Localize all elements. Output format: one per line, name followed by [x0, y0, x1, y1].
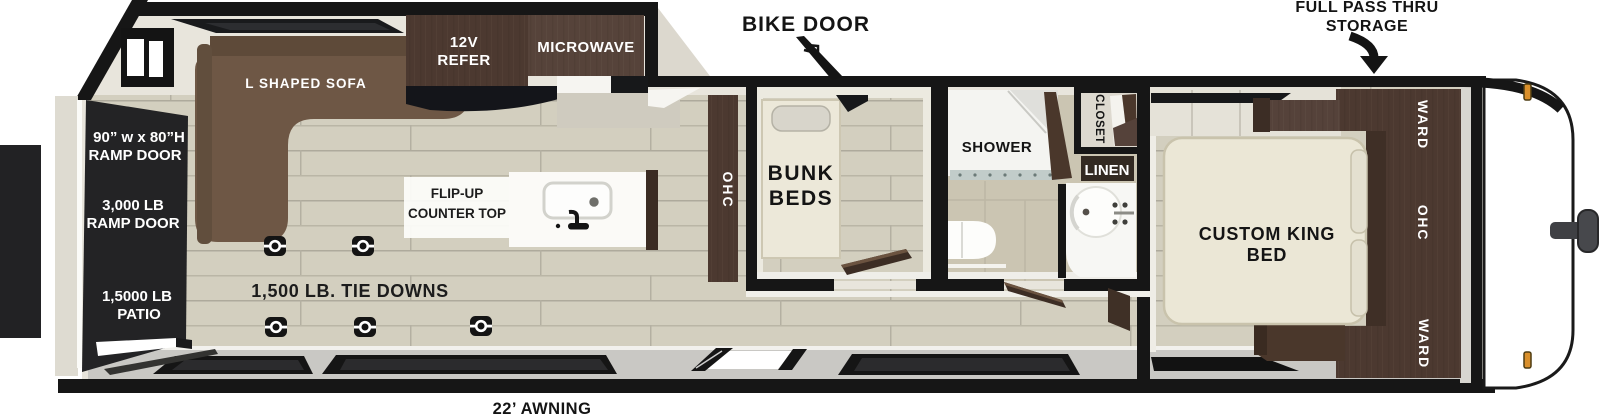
- svg-text:1,500 LB. TIE DOWNS: 1,500 LB. TIE DOWNS: [251, 281, 448, 301]
- svg-text:WARD: WARD: [1416, 319, 1432, 369]
- svg-text:CLOSET: CLOSET: [1093, 94, 1105, 144]
- svg-text:22’ AWNING: 22’ AWNING: [493, 400, 592, 415]
- svg-text:LINEN: LINEN: [1085, 162, 1130, 179]
- svg-text:SHOWER: SHOWER: [962, 139, 1033, 156]
- svg-text:BIKE DOOR: BIKE DOOR: [742, 13, 870, 36]
- svg-text:STORAGE: STORAGE: [1326, 18, 1408, 35]
- svg-text:BED: BED: [1247, 245, 1287, 265]
- svg-text:REFER: REFER: [437, 52, 490, 69]
- svg-text:FULL PASS THRU: FULL PASS THRU: [1295, 0, 1438, 16]
- svg-text:RAMP DOOR: RAMP DOOR: [86, 215, 179, 232]
- svg-text:1,5000 LB: 1,5000 LB: [102, 288, 172, 305]
- svg-text:L SHAPED SOFA: L SHAPED SOFA: [245, 76, 367, 91]
- svg-text:OHC: OHC: [1415, 205, 1431, 242]
- svg-text:PATIO: PATIO: [117, 306, 161, 323]
- svg-text:WARD: WARD: [1415, 100, 1431, 150]
- svg-text:COUNTER TOP: COUNTER TOP: [408, 206, 506, 221]
- svg-text:OHC: OHC: [720, 171, 736, 208]
- svg-text:MICROWAVE: MICROWAVE: [537, 39, 635, 56]
- svg-text:RAMP DOOR: RAMP DOOR: [88, 147, 181, 164]
- svg-text:90” w x 80”H: 90” w x 80”H: [93, 129, 185, 146]
- svg-text:12V: 12V: [450, 34, 478, 51]
- svg-text:FLIP-UP: FLIP-UP: [431, 186, 484, 201]
- svg-text:CUSTOM KING: CUSTOM KING: [1199, 224, 1335, 244]
- svg-text:3,000 LB: 3,000 LB: [102, 197, 164, 214]
- svg-text:BUNK: BUNK: [768, 162, 835, 185]
- svg-text:BEDS: BEDS: [769, 187, 833, 210]
